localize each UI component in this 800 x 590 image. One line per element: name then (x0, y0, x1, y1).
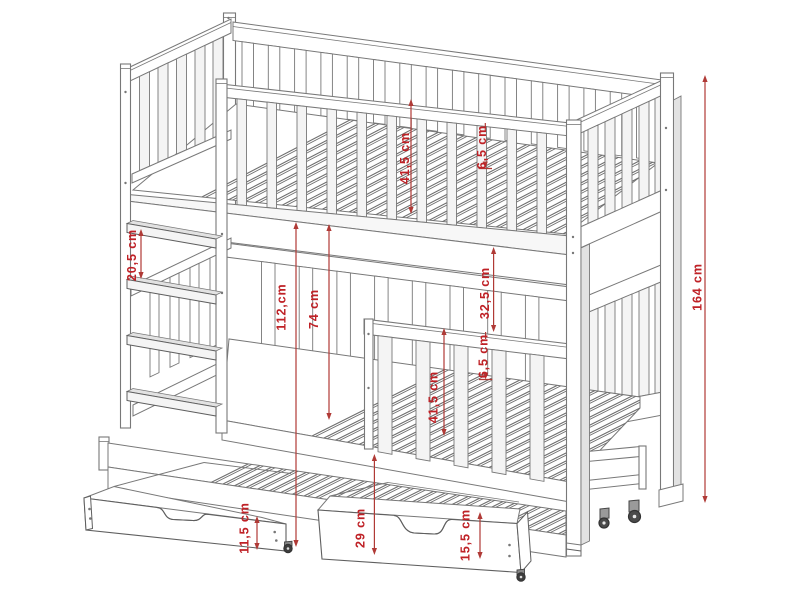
svg-text:6,5 cm: 6,5 cm (476, 334, 490, 378)
svg-text:74 cm: 74 cm (307, 289, 321, 329)
svg-text:41,5 cm: 41,5 cm (398, 132, 412, 184)
svg-text:15,5 cm: 15,5 cm (458, 509, 472, 561)
svg-text:6,5 cm: 6,5 cm (475, 125, 489, 169)
svg-text:11,5 cm: 11,5 cm (237, 502, 251, 553)
svg-text:41,5 cm: 41,5 cm (426, 371, 440, 423)
svg-text:164 cm: 164 cm (690, 263, 704, 311)
svg-text:112,cm: 112,cm (274, 283, 288, 330)
svg-text:29 cm: 29 cm (353, 508, 367, 548)
svg-text:20,5 cm: 20,5 cm (125, 229, 139, 281)
svg-text:32,5 cm: 32,5 cm (478, 267, 492, 319)
